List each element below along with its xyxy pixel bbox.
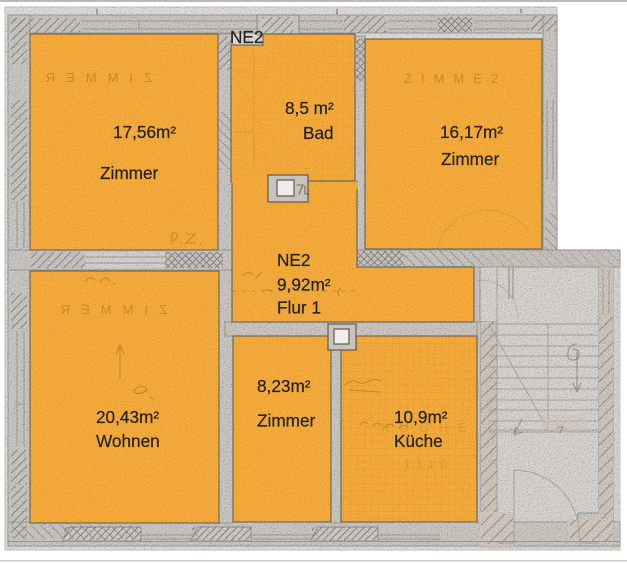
svg-text:10,9m²: 10,9m² [394, 407, 448, 427]
svg-text:Flur 1: Flur 1 [277, 298, 321, 318]
svg-text:17,56m²: 17,56m² [113, 122, 176, 142]
svg-text:Wohnen: Wohnen [96, 431, 160, 451]
svg-text:NE2: NE2 [277, 250, 310, 270]
svg-text:8,23m²: 8,23m² [257, 376, 311, 396]
svg-text:NE2: NE2 [230, 27, 263, 47]
svg-text:Bad: Bad [303, 123, 334, 143]
svg-text:9,92m²: 9,92m² [277, 275, 331, 295]
svg-text:Zimmer: Zimmer [441, 149, 500, 169]
svg-text:Küche: Küche [394, 431, 443, 451]
svg-text:Zimmer: Zimmer [100, 163, 159, 183]
svg-text:Zimmer: Zimmer [257, 411, 316, 431]
svg-text:16,17m²: 16,17m² [440, 122, 503, 142]
svg-text:20,43m²: 20,43m² [96, 407, 159, 427]
svg-text:8,5 m²: 8,5 m² [285, 98, 334, 118]
